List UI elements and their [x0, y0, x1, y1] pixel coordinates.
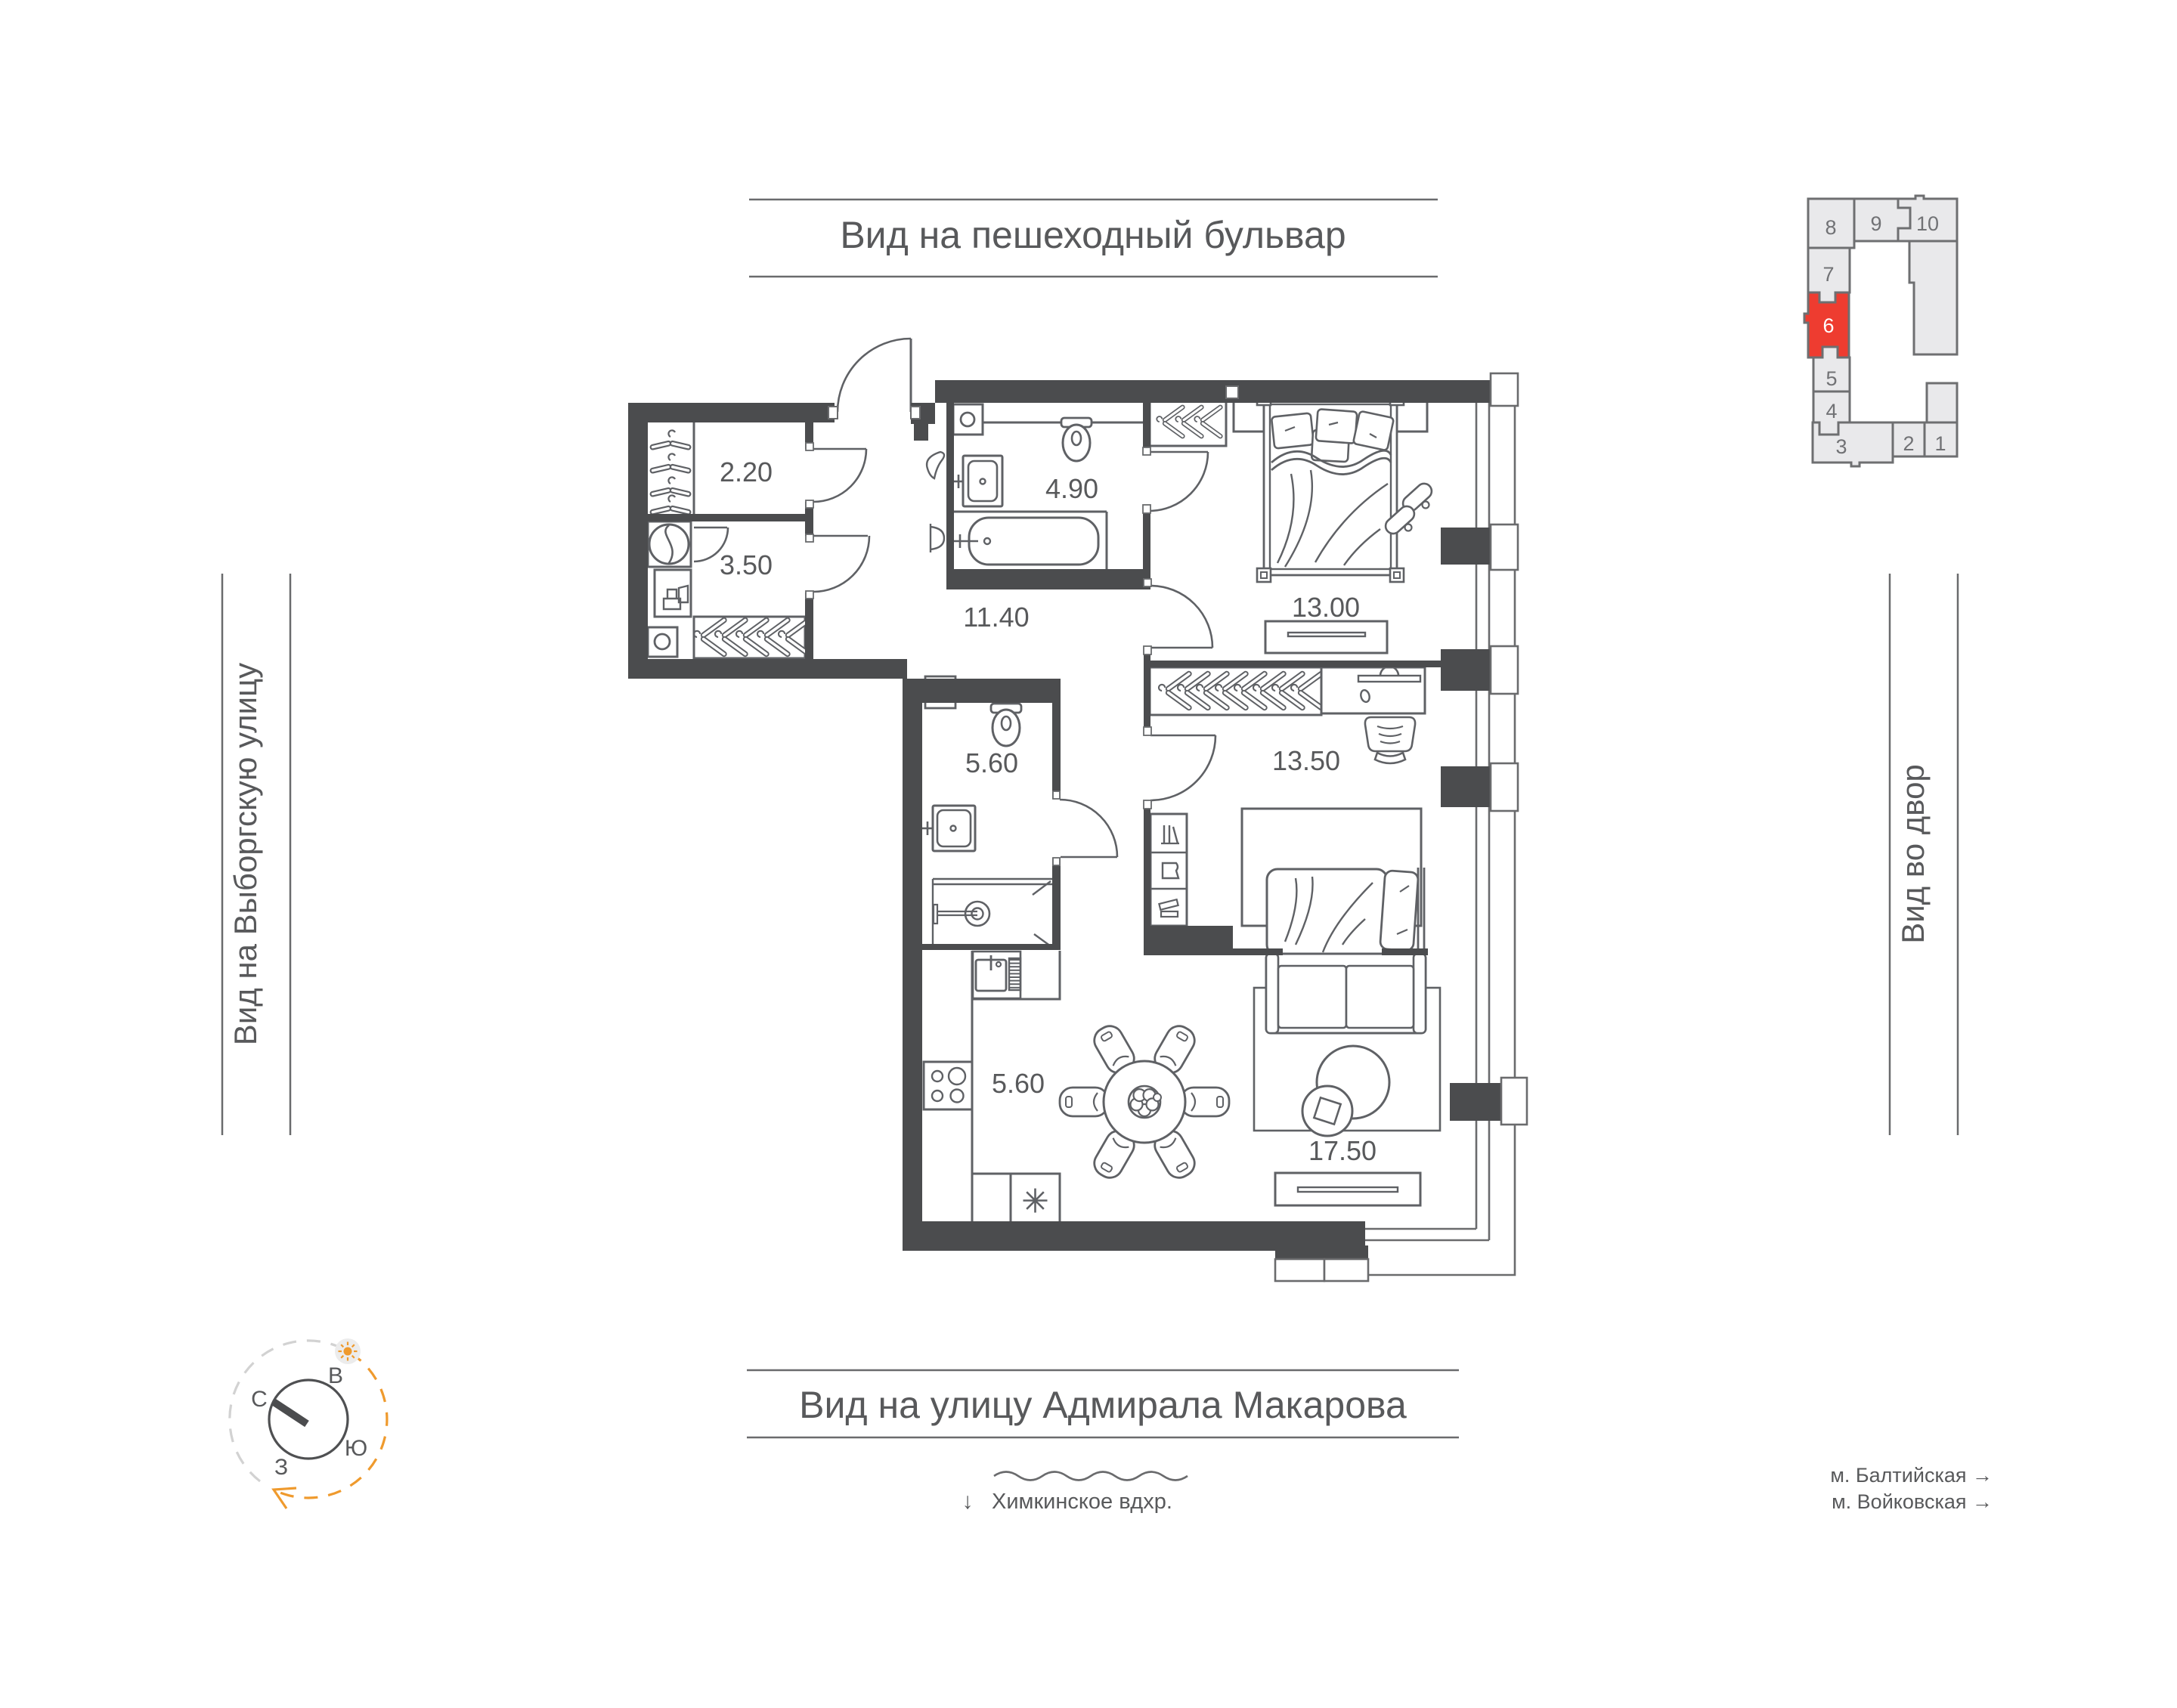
svg-text:3.50: 3.50 — [720, 549, 773, 580]
svg-text:13.00: 13.00 — [1292, 592, 1360, 623]
svg-text:Вид на Выборгскую улицу: Вид на Выборгскую улицу — [228, 663, 263, 1045]
svg-text:Химкинское вдхр.: Химкинское вдхр. — [992, 1490, 1172, 1514]
svg-text:9: 9 — [1870, 212, 1881, 235]
svg-text:4.90: 4.90 — [1045, 473, 1098, 504]
svg-text:Ю: Ю — [345, 1436, 367, 1461]
svg-text:4: 4 — [1826, 400, 1837, 422]
svg-text:В: В — [328, 1363, 343, 1388]
svg-text:↓: ↓ — [962, 1489, 974, 1514]
svg-text:2.20: 2.20 — [720, 456, 773, 487]
svg-text:11.40: 11.40 — [963, 602, 1029, 633]
svg-text:З: З — [274, 1455, 288, 1480]
svg-text:8: 8 — [1825, 216, 1836, 239]
svg-text:м. Балтийская →: м. Балтийская → — [1830, 1464, 1993, 1487]
svg-text:3: 3 — [1835, 435, 1847, 458]
svg-text:Вид на пешеходный бульвар: Вид на пешеходный бульвар — [840, 214, 1346, 256]
svg-text:м. Войковская →: м. Войковская → — [1832, 1490, 1993, 1513]
svg-text:С: С — [251, 1387, 268, 1412]
svg-text:17.50: 17.50 — [1308, 1135, 1376, 1166]
svg-text:Вид во двор: Вид во двор — [1895, 764, 1931, 944]
svg-text:6: 6 — [1822, 314, 1834, 337]
svg-text:7: 7 — [1822, 263, 1834, 286]
svg-text:5.60: 5.60 — [965, 747, 1018, 778]
svg-text:13.50: 13.50 — [1272, 745, 1340, 776]
svg-text:5: 5 — [1826, 367, 1837, 390]
svg-text:2: 2 — [1903, 432, 1914, 455]
svg-text:5.60: 5.60 — [992, 1068, 1045, 1099]
svg-text:Вид на улицу Адмирала Макарова: Вид на улицу Адмирала Макарова — [799, 1384, 1407, 1426]
svg-text:1: 1 — [1934, 432, 1946, 455]
svg-text:10: 10 — [1916, 212, 1939, 235]
